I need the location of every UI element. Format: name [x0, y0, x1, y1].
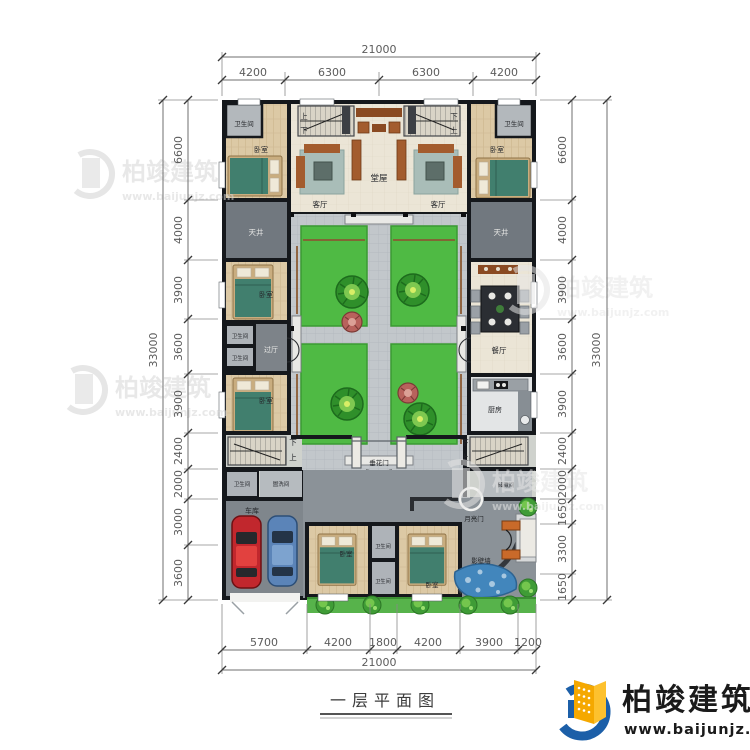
dim-right-seg: 6600 — [556, 136, 569, 164]
room-label-laundry: 盥洗间 — [273, 480, 290, 488]
dim-top-seg: 6300 — [318, 66, 346, 79]
room-label-bath-bottom-center-2: 卫生间 — [375, 577, 391, 585]
dim-right-total: 33000 — [590, 333, 603, 368]
courtyard-bench-left — [292, 316, 301, 372]
stair-label-up: 上 — [300, 112, 308, 121]
dim-top-total: 21000 — [362, 43, 397, 56]
dim-bottom-seg: 4200 — [414, 636, 442, 649]
garden-bed-top-right — [391, 226, 457, 326]
tree-icon — [404, 403, 436, 435]
room-bath-bottom-center-1 — [372, 526, 395, 558]
watermark: 柏竣建筑 www.baijunjz.com — [495, 260, 669, 320]
floor-plan-canvas: 卫生间 卧室 上 下 客厅 堂屋 客厅 下 上 卧室 卫生间 天井 天井 卧室 … — [0, 0, 750, 750]
room-label-living-left: 客厅 — [313, 199, 328, 209]
bush-icon — [519, 579, 537, 597]
dim-top-seg: 4200 — [239, 66, 267, 79]
car-blue — [268, 516, 297, 586]
bush-icon — [501, 596, 519, 614]
bush-icon — [363, 596, 381, 614]
car-red — [232, 516, 261, 588]
brand-name: 柏竣建筑 — [622, 683, 750, 718]
drawing-title: 一层平面图 — [330, 691, 440, 710]
stair-label-up: 上 — [450, 126, 458, 135]
room-label-bedroom-top-left: 卧室 — [254, 145, 268, 154]
tree-icon — [336, 276, 368, 308]
courtyard-bench-right — [457, 316, 466, 372]
brand-logo: 柏竣建筑 www.baijunjz.com — [549, 679, 750, 746]
room-label-lightwell-right: 天井 — [494, 227, 509, 237]
bed-top-right — [476, 158, 530, 198]
dim-bottom-total: 21000 — [362, 656, 397, 669]
bed-top-left — [228, 156, 282, 196]
room-label-kitchen: 厨房 — [488, 405, 502, 414]
dim-bottom-seg: 1200 — [514, 636, 542, 649]
room-label-lightwell-left: 天井 — [249, 227, 264, 237]
tree-icon — [331, 388, 363, 420]
room-label-bath-bottom-left: 卫生间 — [234, 480, 251, 488]
gate-label-festoon: 垂花门 — [369, 458, 389, 467]
architectural-drawing-sheet: 卫生间 卧室 上 下 客厅 堂屋 客厅 下 上 卧室 卫生间 天井 天井 卧室 … — [0, 0, 750, 750]
svg-text:柏竣建筑: 柏竣建筑 — [557, 274, 653, 302]
watermark: 柏竣建筑 www.baijunjz.com — [53, 360, 227, 420]
tree-icon — [342, 312, 362, 332]
room-label-bedroom-top-right: 卧室 — [490, 145, 504, 154]
svg-text:www.baijunjz.com: www.baijunjz.com — [122, 190, 234, 203]
dim-right-seg: 3900 — [556, 276, 569, 304]
room-label-bedroom-mid-left-2: 卧室 — [259, 396, 273, 405]
room-label-foyer: 过厅 — [264, 345, 278, 354]
dim-left-seg: 3600 — [172, 333, 185, 361]
garage-door-opening — [230, 593, 300, 602]
bed-mid-left-2 — [233, 378, 273, 432]
room-label-hall: 堂屋 — [370, 173, 388, 184]
room-label-bedroom-mid-left-1: 卧室 — [259, 290, 273, 299]
dim-left-seg: 4000 — [172, 216, 185, 244]
room-label-bath-bottom-center-1: 卫生间 — [375, 542, 391, 550]
stair-label-down: 下 — [450, 112, 458, 121]
dim-right-seg: 3300 — [556, 535, 569, 563]
room-label-bedroom-bottom-right: 卧室 — [426, 580, 440, 589]
room-bath-bottom-center-2 — [372, 562, 395, 594]
svg-text:www.baijunjz.com: www.baijunjz.com — [492, 500, 604, 513]
dim-left-total: 33000 — [147, 333, 160, 368]
dim-bottom-seg: 4200 — [324, 636, 352, 649]
gate-label-moon: 月亮门 — [464, 514, 484, 523]
brand-url: www.baijunjz.com — [624, 722, 750, 738]
tree-icon — [397, 274, 429, 306]
room-label-garage: 车库 — [245, 506, 259, 515]
dim-left-seg: 2000 — [172, 470, 185, 498]
room-label-bath-mid-left-2: 卫生间 — [232, 354, 249, 362]
drawing-title-block: 一层平面图 — [320, 691, 452, 718]
bush-icon — [459, 596, 477, 614]
dim-right-seg: 3900 — [556, 390, 569, 418]
dim-right-seg: 2000 — [556, 470, 569, 498]
bed-bottom-right — [408, 534, 446, 585]
dim-left-seg: 2400 — [172, 437, 185, 465]
hall-altar-table — [356, 108, 402, 117]
kitchen-side-counter — [518, 391, 532, 431]
dim-right-seg: 1650 — [556, 498, 569, 526]
dim-right-seg: 4000 — [556, 216, 569, 244]
dim-bottom-seg: 5700 — [250, 636, 278, 649]
svg-text:柏竣建筑: 柏竣建筑 — [122, 158, 218, 186]
dim-left-seg: 3600 — [172, 559, 185, 587]
room-label-bath-mid-left-1: 卫生间 — [232, 332, 249, 340]
dim-left-seg: 6600 — [172, 136, 185, 164]
room-label-dining: 餐厅 — [492, 346, 507, 355]
dim-right-seg: 1650 — [556, 573, 569, 601]
room-label-living-right: 客厅 — [431, 199, 446, 209]
stair-label-down: 下 — [300, 126, 308, 135]
floor-plan: 卫生间 卧室 上 下 客厅 堂屋 客厅 下 上 卧室 卫生间 天井 天井 卧室 … — [219, 99, 537, 614]
dim-bottom-seg: 1800 — [369, 636, 397, 649]
dim-top-seg: 6300 — [412, 66, 440, 79]
stair-label-down: 下 — [461, 438, 469, 447]
room-label-bath-top-right: 卫生间 — [504, 119, 524, 128]
dim-right-seg: 3600 — [556, 333, 569, 361]
brand-logo-icon — [549, 679, 616, 746]
watermark: 柏竣建筑 www.baijunjz.com — [60, 144, 234, 204]
room-label-bath-top-left: 卫生间 — [234, 119, 254, 128]
stair-label-down: 下 — [289, 438, 297, 447]
dim-left-seg: 3000 — [172, 508, 185, 536]
svg-text:柏竣建筑: 柏竣建筑 — [492, 468, 588, 496]
dim-right-seg: 2400 — [556, 437, 569, 465]
dim-left-seg: 3900 — [172, 276, 185, 304]
room-label-bedroom-bottom-left: 卧室 — [340, 549, 354, 558]
dim-left-seg: 3900 — [172, 390, 185, 418]
stair-label-up: 上 — [289, 453, 297, 462]
wall-label-screen: 影壁墙 — [471, 556, 491, 565]
garden-bed-top-left — [301, 226, 367, 326]
dim-bottom-seg: 3900 — [475, 636, 503, 649]
dim-top-seg: 4200 — [490, 66, 518, 79]
bed-bottom-left — [318, 534, 356, 585]
tree-icon — [398, 383, 418, 403]
